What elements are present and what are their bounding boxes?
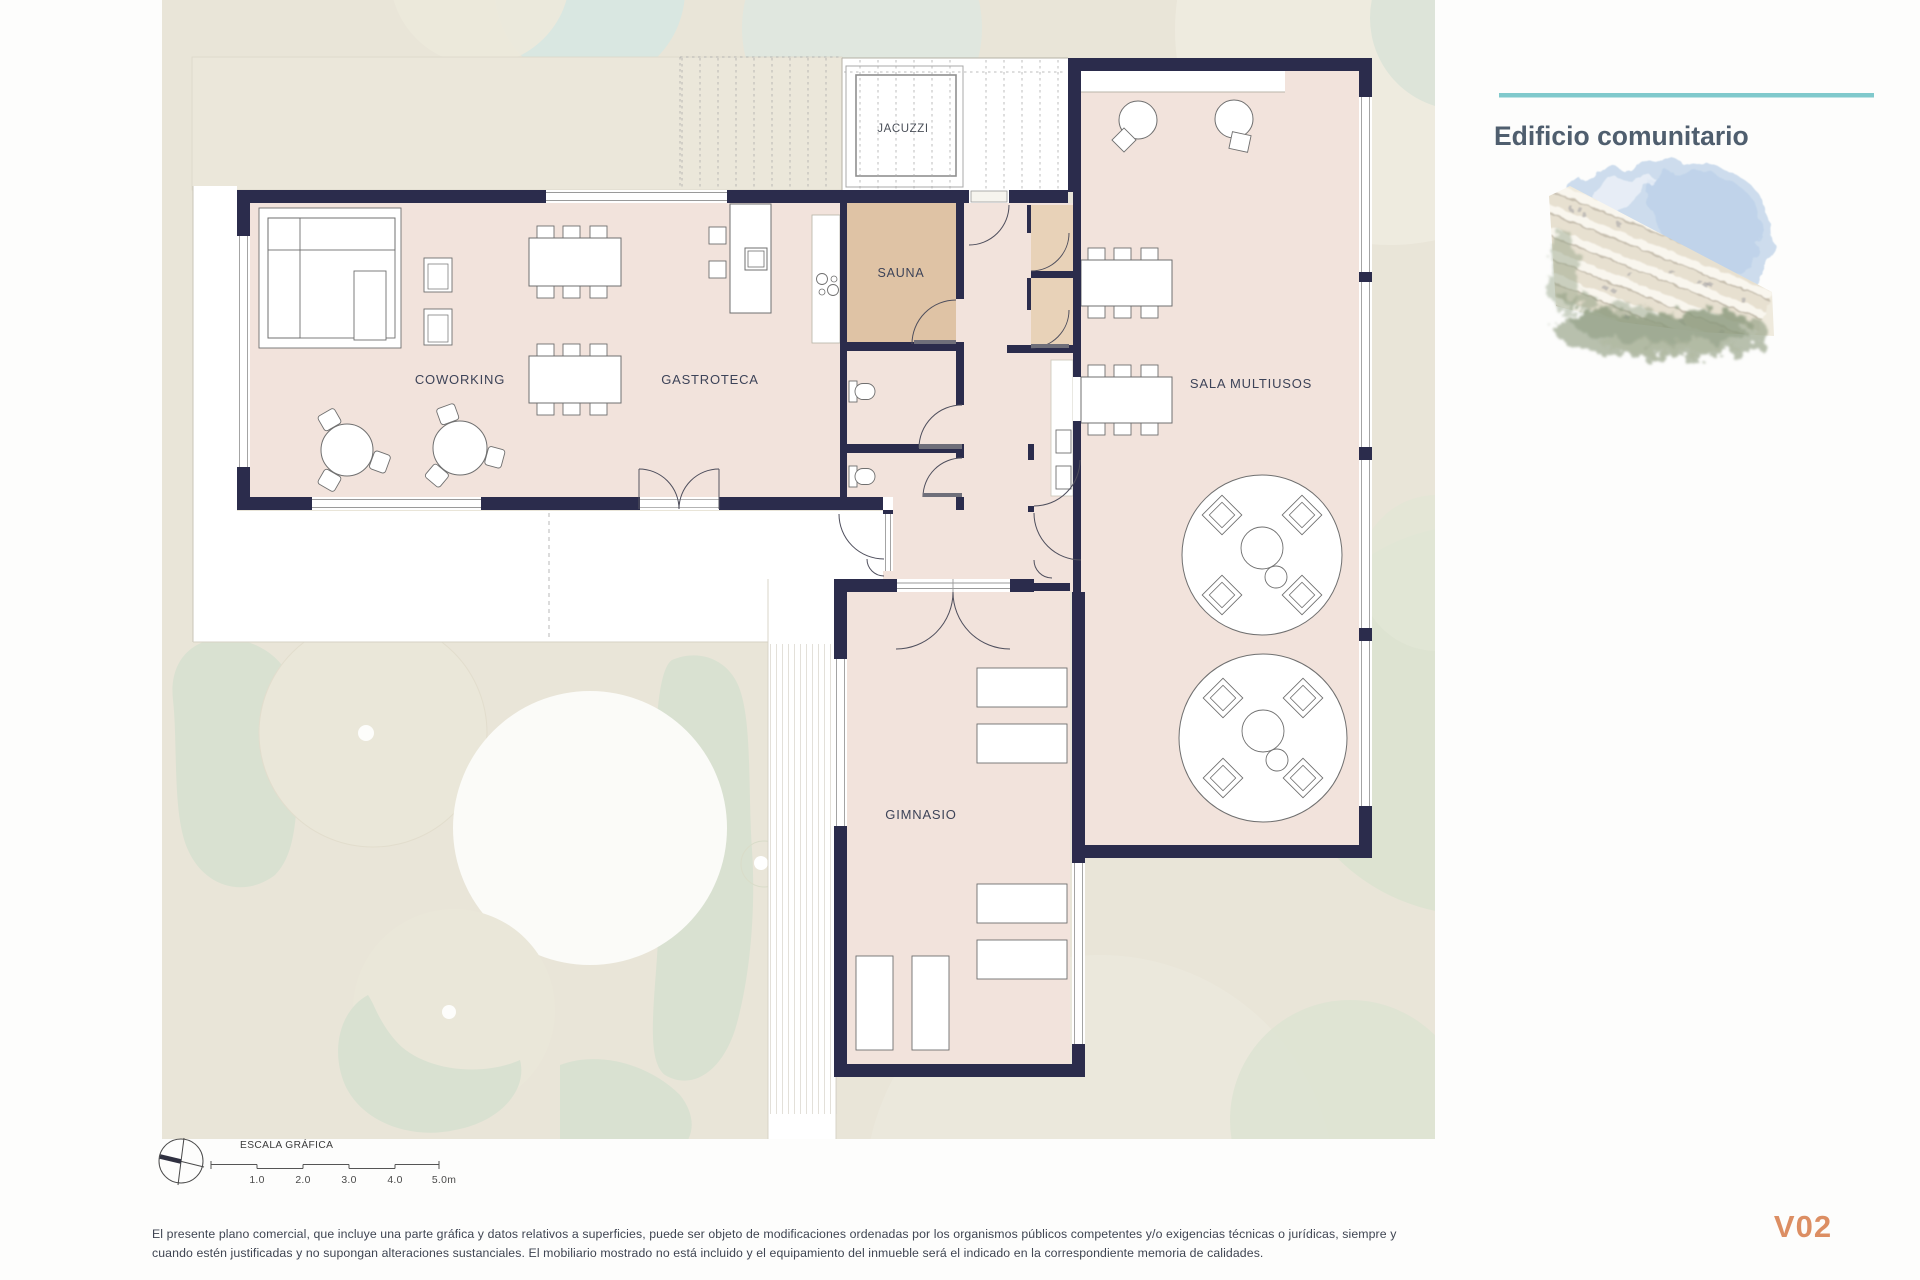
svg-text:3.0: 3.0 [341,1175,356,1186]
svg-text:4.0: 4.0 [387,1175,402,1186]
svg-text:Edificio comunitario: Edificio comunitario [1494,121,1749,151]
svg-text:2.0: 2.0 [295,1175,310,1186]
svg-text:JACUZZI: JACUZZI [877,123,928,135]
svg-text:SALA MULTIUSOS: SALA MULTIUSOS [1190,376,1312,391]
svg-text:ESCALA GRÁFICA: ESCALA GRÁFICA [240,1138,333,1151]
svg-text:1.0: 1.0 [249,1175,264,1186]
svg-text:SAUNA: SAUNA [877,266,924,280]
svg-text:El presente plano comercial, q: El presente plano comercial, que incluye… [152,1227,1397,1241]
svg-text:GASTROTECA: GASTROTECA [661,372,759,387]
svg-text:GIMNASIO: GIMNASIO [885,807,956,822]
svg-text:V02: V02 [1774,1209,1832,1244]
svg-text:cuando estén justificadas y no: cuando estén justificadas y no supongan … [152,1246,1263,1260]
svg-text:5.0m: 5.0m [432,1175,456,1186]
svg-text:COWORKING: COWORKING [415,372,505,387]
